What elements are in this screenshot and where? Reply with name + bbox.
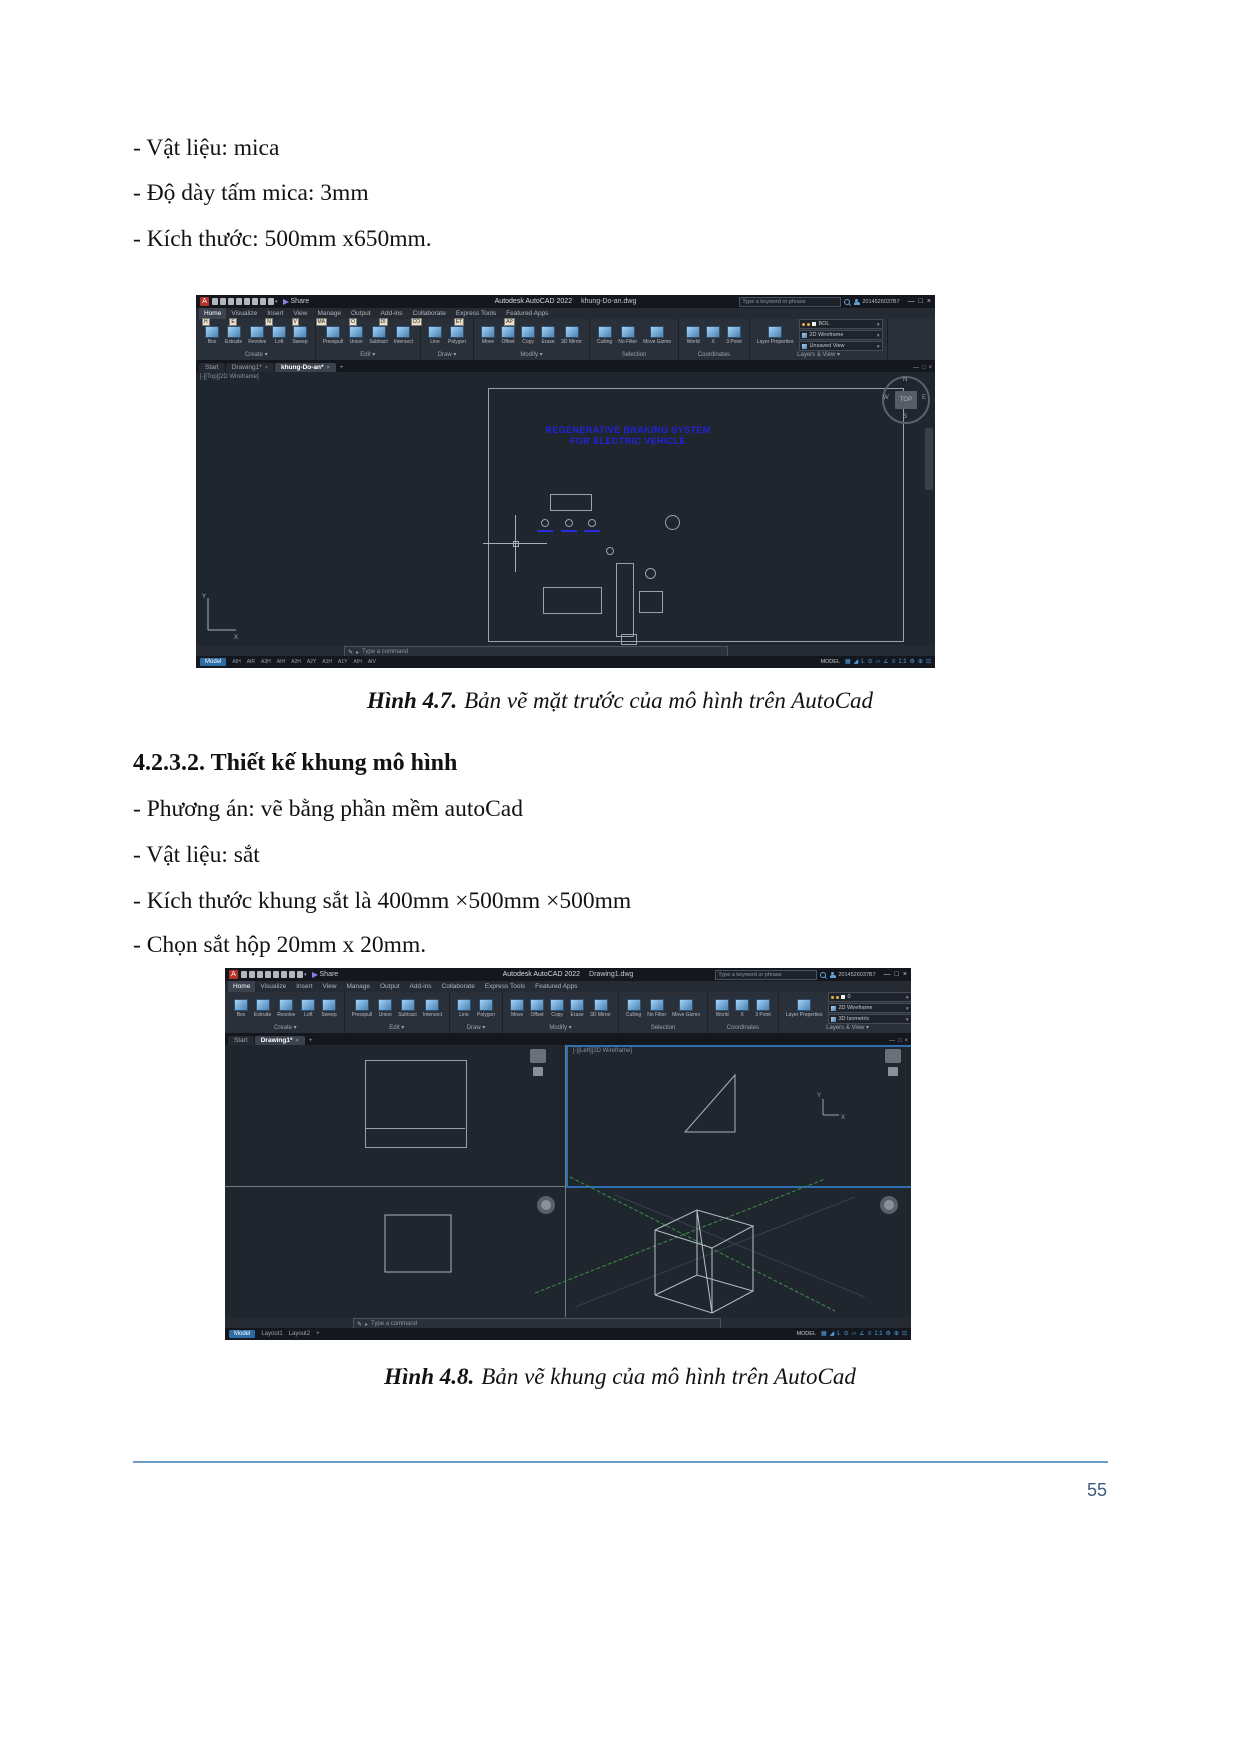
figure-caption-4-7: Hình 4.7.Bản vẽ mặt trước của mô hình tr…: [0, 688, 1240, 714]
ribbon-tab[interactable]: Express ToolsET: [451, 308, 501, 319]
tool-icon: [650, 999, 664, 1011]
panel-modify: MoveOffsetCopyErase3D Mirror Modify ▾: [474, 319, 590, 360]
ribbon-tool[interactable]: Polygon: [445, 326, 469, 345]
tool-icon: [279, 999, 293, 1011]
small-hole: [606, 547, 614, 555]
qat-icon[interactable]: [257, 971, 263, 978]
ribbon-tab[interactable]: Manage: [342, 981, 376, 992]
status-toggle-icon[interactable]: ≡: [892, 656, 896, 668]
file-name: khung-Do-an.dwg: [581, 298, 636, 305]
status-toggle-icon[interactable]: ⚙: [886, 1328, 891, 1340]
search-input[interactable]: [739, 297, 841, 307]
viewcube-north[interactable]: N: [903, 377, 907, 383]
tool-icon: [510, 999, 524, 1011]
qat-icon[interactable]: [212, 298, 218, 305]
minimize-button[interactable]: —: [908, 298, 915, 305]
ribbon-tab[interactable]: Add-insDI: [376, 308, 408, 319]
layout-tab[interactable]: AIH: [229, 659, 243, 665]
ribbon-tool[interactable]: X: [703, 326, 723, 345]
panel-draw: LinePolygon Draw ▾: [450, 992, 503, 1033]
status-toggle-icon[interactable]: ◢: [830, 1328, 835, 1340]
model-tab[interactable]: Model: [229, 1330, 255, 1338]
status-toggle-icon[interactable]: ▦: [845, 656, 851, 668]
file-tab[interactable]: Drawing1*×: [255, 1036, 305, 1045]
ribbon-tab[interactable]: InsertN: [262, 308, 288, 319]
keytip-badge: AP: [504, 318, 515, 326]
maximize-button[interactable]: □: [895, 971, 899, 978]
qat-icon[interactable]: [281, 971, 287, 978]
layer-dropdown[interactable]: 0▼: [828, 992, 911, 1002]
slot-rectangle: [616, 563, 634, 637]
status-toggle-icon[interactable]: ◢: [854, 656, 859, 668]
tool-icon: [565, 326, 579, 338]
button-hole: [588, 519, 596, 527]
panel-name[interactable]: Draw ▾: [425, 351, 469, 360]
tool-icon: [401, 999, 415, 1011]
tool-icon: [650, 326, 664, 338]
viewcube[interactable]: [880, 1196, 898, 1214]
tool-icon: [756, 999, 770, 1011]
status-toggle-icon[interactable]: ⚙: [910, 656, 915, 668]
navigation-bar[interactable]: [925, 428, 933, 490]
qat-icon[interactable]: [268, 298, 274, 305]
panel-name[interactable]: Modify ▾: [478, 351, 585, 360]
status-toggle-icon[interactable]: ▱: [876, 656, 881, 668]
tool-icon: [679, 999, 693, 1011]
pickbox: [513, 541, 519, 547]
keytip-badge: MA: [316, 318, 328, 326]
close-tab-icon[interactable]: ×: [327, 365, 330, 371]
maximize-button[interactable]: □: [919, 298, 923, 305]
tool-icon: [205, 326, 219, 338]
qat-icon[interactable]: [236, 298, 242, 305]
layout-tab[interactable]: Layout1: [258, 1331, 285, 1337]
chevron-down-icon: ▼: [876, 322, 880, 327]
panel-name[interactable]: Edit ▾: [320, 351, 416, 360]
account-icon[interactable]: [829, 972, 835, 978]
figure-label: Hình 4.7.: [367, 688, 457, 713]
ribbon-tool[interactable]: World: [712, 999, 732, 1018]
restore-drawing-icon[interactable]: □: [898, 1038, 902, 1044]
viewcube[interactable]: N S W E TOP: [882, 376, 930, 424]
figure-label: Hình 4.8.: [384, 1364, 474, 1389]
app-menu-icon[interactable]: A: [200, 297, 209, 306]
layout-tab[interactable]: AIH: [274, 659, 288, 665]
status-toggle-icon[interactable]: ≡: [868, 1328, 872, 1340]
view-icon: [802, 344, 807, 349]
ribbon-tool[interactable]: Intersect: [420, 999, 445, 1018]
qat-icon[interactable]: [228, 298, 234, 305]
ribbon-tool[interactable]: Polygon: [474, 999, 498, 1018]
close-tab-icon[interactable]: ×: [265, 365, 268, 371]
ucs-x-label: X: [234, 635, 238, 640]
ribbon-tab[interactable]: Output: [375, 981, 405, 992]
share-icon: [312, 972, 318, 978]
frame-iso-wireframe: [655, 1210, 753, 1313]
section-heading: 4.2.3.2. Thiết kế khung mô hình: [133, 750, 457, 777]
ribbon-tool[interactable]: Union: [375, 999, 395, 1018]
ribbon-tool[interactable]: Intersect: [391, 326, 416, 345]
cutout-rectangle: [543, 587, 602, 614]
ribbon-tab[interactable]: View: [318, 981, 342, 992]
qat-icon[interactable]: [241, 971, 247, 978]
panel-selection: CullingNo FilterMove Gizmo Selection: [590, 319, 679, 360]
ribbon-tool[interactable]: Copy: [518, 326, 538, 345]
search-icon[interactable]: [844, 299, 850, 305]
panel-edit: PresspullUnionSubtractIntersect Edit ▾: [345, 992, 450, 1033]
footer-divider: [133, 1461, 1108, 1463]
page-number: 55: [1087, 1480, 1107, 1501]
customize-command-icon[interactable]: ✎: [357, 1321, 362, 1328]
panel-selection: CullingNo FilterMove Gizmo Selection: [619, 992, 708, 1033]
status-toggle-icon[interactable]: L: [861, 656, 864, 668]
bullet-frame-size: - Kích thước khung sắt là 400mm ×500mm ×…: [133, 888, 631, 915]
tool-icon: [256, 999, 270, 1011]
panel-name[interactable]: Coordinates: [712, 1024, 774, 1033]
ribbon-tool[interactable]: Offset: [498, 326, 518, 345]
app-title: Autodesk AutoCAD 2022: [503, 971, 580, 978]
ribbon-tool[interactable]: 3 Point: [752, 999, 774, 1018]
gauge-hole: [665, 515, 680, 530]
panel-coordinates: WorldX3 Point Coordinates: [708, 992, 779, 1033]
layout-tab[interactable]: A1H: [319, 659, 335, 665]
search-icon[interactable]: [820, 972, 826, 978]
ribbon-tool[interactable]: 3D Mirror: [558, 326, 585, 345]
ribbon-tool[interactable]: Line: [454, 999, 474, 1018]
ribbon-tool[interactable]: Subtract: [395, 999, 420, 1018]
viewcube[interactable]: [885, 1049, 901, 1063]
ribbon-tool[interactable]: Box: [202, 326, 222, 345]
panel-edit: PresspullUnionSubtractIntersect Edit ▾: [316, 319, 421, 360]
new-layout-button[interactable]: +: [313, 1331, 323, 1337]
restore-drawing-icon[interactable]: □: [922, 365, 926, 371]
close-drawing-icon[interactable]: ×: [904, 1038, 908, 1044]
status-toggle-icon[interactable]: ⊕: [918, 656, 923, 668]
ribbon-tool[interactable]: Extrude: [222, 326, 245, 345]
status-toggle-icon[interactable]: ⊡: [902, 1328, 907, 1340]
figure-text: Bản vẽ mặt trước của mô hình trên AutoCa…: [464, 688, 873, 713]
close-tab-icon[interactable]: ×: [296, 1038, 299, 1044]
view-value: 3D Isometric: [838, 1016, 869, 1022]
command-placeholder: Type a command: [371, 1321, 417, 1327]
layout-tab[interactable]: A2H: [288, 659, 304, 665]
tool-icon: [234, 999, 248, 1011]
ribbon-tab[interactable]: ViewV: [289, 308, 313, 319]
tool-icon: [530, 999, 544, 1011]
new-drawing-tab-button[interactable]: +: [309, 1037, 313, 1045]
window-controls: —□×: [908, 298, 931, 305]
ribbon-tool[interactable]: Box: [231, 999, 251, 1018]
ribbon-tab[interactable]: HomeH: [199, 308, 226, 319]
visual-style-dropdown[interactable]: 2D Wireframe▼: [828, 1003, 911, 1013]
qat-icon[interactable]: [249, 971, 255, 978]
viewcube[interactable]: [537, 1196, 555, 1214]
app-menu-icon[interactable]: A: [229, 970, 238, 979]
visual-style-dropdown[interactable]: 2D Wireframe▼: [799, 330, 883, 340]
ribbon-tool[interactable]: Revolve: [245, 326, 269, 345]
status-toggle-icon[interactable]: 1:1: [874, 1328, 882, 1340]
ribbon-tool[interactable]: Copy: [547, 999, 567, 1018]
tool-icon: [715, 999, 729, 1011]
tool-icon: [735, 999, 749, 1011]
share-button[interactable]: Share: [291, 298, 310, 305]
panel-coordinates: WorldX3 Point Coordinates: [679, 319, 750, 360]
chevron-down-icon: ▼: [905, 1017, 909, 1022]
qat-icon[interactable]: [297, 971, 303, 978]
layout-tab[interactable]: A2Y: [304, 659, 319, 665]
layout-tab[interactable]: AIV: [365, 659, 379, 665]
button-label-text: [537, 530, 553, 532]
tool-icon: [541, 326, 555, 338]
keytip-badge: E: [229, 318, 236, 326]
minimize-drawing-icon[interactable]: —: [889, 1038, 895, 1044]
file-tab[interactable]: Drawing1*×: [226, 363, 274, 372]
ribbon-tool[interactable]: Subtract: [366, 326, 391, 345]
drawing-canvas[interactable]: [-][Top][2D Wireframe] REGENERATIVE BRAK…: [196, 372, 935, 645]
ribbon-tool[interactable]: Erase: [567, 999, 587, 1018]
model-tab[interactable]: Model: [200, 658, 226, 666]
file-tab[interactable]: khung-Do-an*×: [275, 363, 336, 372]
ribbon-tab[interactable]: VisualizeE: [226, 308, 262, 319]
ribbon-tool[interactable]: 3 Point: [723, 326, 745, 345]
ribbon-tool-layer-properties[interactable]: Layer Properties: [783, 999, 826, 1018]
status-toggle-icon[interactable]: ▱: [852, 1328, 857, 1340]
drawing-title-line2: FOR ELECTRIC VEHICLE: [570, 436, 686, 446]
document-page: - Vật liệu: mica - Độ dày tấm mica: 3mm …: [0, 0, 1240, 1754]
ribbon-tool[interactable]: Extrude: [251, 999, 274, 1018]
ribbon-tool[interactable]: 3D Mirror: [587, 999, 614, 1018]
tool-icon: [301, 999, 315, 1011]
window-title: Autodesk AutoCAD 2022Drawing1.dwg: [503, 971, 634, 978]
search-input[interactable]: [715, 970, 817, 980]
bullet-thickness: - Độ dày tấm mica: 3mm: [133, 180, 369, 207]
tool-icon: [293, 326, 307, 338]
titlebar: A ▾ Share Autodesk AutoCAD 2022khung-Do-…: [196, 295, 935, 308]
button-label-text: [584, 530, 600, 532]
tool-icon: [621, 326, 635, 338]
viewcube-home-icon[interactable]: [888, 1067, 898, 1076]
qat-icon[interactable]: [220, 298, 226, 305]
panel-name[interactable]: Create ▾: [231, 1024, 340, 1033]
ribbon-tab[interactable]: Featured Apps: [530, 981, 582, 992]
ribbon-tool[interactable]: Union: [346, 326, 366, 345]
ribbon-tab[interactable]: Collaborate: [437, 981, 480, 992]
layout-tab[interactable]: A1Y: [335, 659, 350, 665]
panel-name[interactable]: Edit ▾: [349, 1024, 445, 1033]
view-dropdown[interactable]: Unsaved View▼: [799, 341, 883, 351]
visual-style-value: 2D Wireframe: [838, 1005, 872, 1011]
viewport-label[interactable]: [-][Top][2D Wireframe]: [200, 374, 259, 380]
ribbon-tool-layer-properties[interactable]: Layer Properties: [754, 326, 797, 345]
view-dropdown[interactable]: 3D Isometric▼: [828, 1014, 911, 1024]
keytip-badge: O: [349, 318, 357, 326]
keytip-badge: H: [202, 318, 210, 326]
ribbon-tab[interactable]: Home: [228, 981, 255, 992]
close-button[interactable]: ×: [927, 298, 931, 305]
qat-icon[interactable]: [244, 298, 250, 305]
ribbon-tool[interactable]: Sweep: [289, 326, 310, 345]
qat-dropdown-icon[interactable]: ▾: [275, 299, 278, 305]
visual-style-icon: [831, 1006, 836, 1011]
display-cutout: [550, 494, 592, 511]
tool-icon: [594, 999, 608, 1011]
tool-icon: [598, 326, 612, 338]
layer-freeze-icon: [807, 323, 810, 326]
status-toggle-icon[interactable]: ▦: [821, 1328, 827, 1340]
account-id[interactable]: 2014526037B7: [838, 972, 875, 978]
qat-icon[interactable]: [265, 971, 271, 978]
ribbon-tab[interactable]: Express Tools: [480, 981, 530, 992]
tool-icon: [550, 999, 564, 1011]
ribbon-tool[interactable]: Move: [478, 326, 498, 345]
layout-tab[interactable]: A3H: [258, 659, 274, 665]
ribbon-tool[interactable]: Loft: [269, 326, 289, 345]
view-value: Unsaved View: [809, 343, 844, 349]
qat-icon[interactable]: [289, 971, 295, 978]
ribbon-tab[interactable]: OutputO: [346, 308, 376, 319]
ribbon-tool[interactable]: Presspull: [349, 999, 376, 1018]
ribbon-tool[interactable]: World: [683, 326, 703, 345]
status-toggle-icon[interactable]: ⊙: [844, 1328, 849, 1340]
model-space-label[interactable]: MODEL: [796, 1331, 816, 1337]
ribbon-tab[interactable]: ManageMA: [313, 308, 347, 319]
chevron-down-icon: ▼: [905, 995, 909, 1000]
ribbon-tool[interactable]: X: [732, 999, 752, 1018]
layout-tab[interactable]: Layout2: [286, 1331, 313, 1337]
model-space-label[interactable]: MODEL: [820, 659, 840, 665]
keytip-badge: DI: [379, 318, 388, 326]
ribbon-tool[interactable]: No Filter: [644, 999, 669, 1018]
ribbon-tool[interactable]: Offset: [527, 999, 547, 1018]
command-prompt-icon: ▸: [365, 1321, 368, 1328]
ribbon-tab[interactable]: Visualize: [255, 981, 291, 992]
file-tab-bar: Start×Drawing1*× + —□×: [225, 1033, 911, 1045]
tool-icon: [425, 999, 439, 1011]
panel-layers-view: Layer Properties 0▼ 2D Wireframe▼ 3D Iso…: [779, 992, 911, 1033]
file-name: Drawing1.dwg: [589, 971, 633, 978]
ucs-x-label: X: [841, 1115, 845, 1121]
ribbon-tool[interactable]: Move Gizmo: [669, 999, 703, 1018]
autocad-screenshot-2: A ▾ Share Autodesk AutoCAD 2022Drawing1.…: [225, 968, 911, 1340]
account-icon[interactable]: [853, 299, 859, 305]
panel-modify: MoveOffsetCopyErase3D Mirror Modify ▾: [503, 992, 619, 1033]
layer-color-swatch: [841, 995, 845, 999]
new-drawing-tab-button[interactable]: +: [340, 364, 344, 372]
ucs-icon: Y X: [200, 590, 240, 640]
tool-icon: [326, 326, 340, 338]
tool-icon: [372, 326, 386, 338]
chevron-down-icon: ▼: [876, 333, 880, 338]
panel-name[interactable]: Selection: [623, 1024, 703, 1033]
chevron-down-icon: ▼: [905, 1006, 909, 1011]
qat-icon[interactable]: [260, 298, 266, 305]
panel-name[interactable]: Layers & View ▾: [754, 351, 884, 360]
ribbon-tool[interactable]: Sweep: [318, 999, 339, 1018]
ribbon-tool[interactable]: Loft: [298, 999, 318, 1018]
status-toggle-icon[interactable]: ⊙: [868, 656, 873, 668]
panel-name[interactable]: Create ▾: [202, 351, 311, 360]
viewcube-south[interactable]: S: [903, 414, 907, 420]
command-placeholder: Type a command: [362, 649, 408, 655]
status-toggle-icon[interactable]: ∠: [859, 1328, 864, 1340]
layer-value: BOL: [818, 321, 829, 327]
tool-icon: [322, 999, 336, 1011]
viewcube-top-face[interactable]: TOP: [895, 391, 917, 409]
ribbon-tool[interactable]: Culling: [623, 999, 644, 1018]
bullet-method: - Phương án: vẽ bằng phần mềm autoCad: [133, 796, 523, 823]
ribbon-panels: BoxExtrudeRevolveLoftSweep Create ▾ Pres…: [225, 992, 911, 1033]
ribbon-tool[interactable]: Erase: [538, 326, 558, 345]
layout-tab[interactable]: AIH: [350, 659, 364, 665]
file-tab[interactable]: Start×: [228, 1036, 254, 1045]
layer-color-swatch: [812, 322, 816, 326]
share-button[interactable]: Share: [320, 971, 339, 978]
ribbon-tool[interactable]: Revolve: [274, 999, 298, 1018]
keytip-badge: N: [265, 318, 273, 326]
minimize-drawing-icon[interactable]: —: [913, 365, 919, 371]
qat-dropdown-icon[interactable]: ▾: [304, 972, 307, 978]
ribbon-tab[interactable]: Featured AppsAP: [501, 308, 553, 319]
viewcube-east[interactable]: E: [922, 395, 926, 401]
layer-properties-icon: [768, 326, 782, 338]
ribbon-tool[interactable]: Move Gizmo: [640, 326, 674, 345]
panel-name[interactable]: Modify ▾: [507, 1024, 614, 1033]
minimize-button[interactable]: —: [884, 971, 891, 978]
ribbon-tool[interactable]: Presspull: [320, 326, 347, 345]
panel-create: BoxExtrudeRevolveLoftSweep Create ▾: [227, 992, 345, 1033]
tool-icon: [457, 999, 471, 1011]
status-toggle-icon[interactable]: L: [837, 1328, 840, 1340]
button-hole: [541, 519, 549, 527]
status-toggle-icon[interactable]: 1:1: [898, 656, 906, 668]
drawing-title-line1: REGENERATIVE BRAKING SYSTEM: [545, 425, 710, 435]
layer-dropdown[interactable]: BOL▼: [799, 319, 883, 329]
ribbon-tab[interactable]: Add-ins: [405, 981, 437, 992]
ribbon-tab-bar: HomeHVisualizeEInsertNViewVManageMAOutpu…: [196, 308, 935, 319]
visual-style-icon: [802, 333, 807, 338]
window-title: Autodesk AutoCAD 2022khung-Do-an.dwg: [495, 298, 637, 305]
status-toggle-icon[interactable]: ⊕: [894, 1328, 899, 1340]
status-toggle-icon[interactable]: ⊡: [926, 656, 931, 668]
viewcube-west[interactable]: W: [883, 395, 889, 401]
panel-name[interactable]: Layers & View ▾: [783, 1024, 911, 1033]
ribbon-tab[interactable]: CollaborateCO: [408, 308, 451, 319]
panel-name[interactable]: Selection: [594, 351, 674, 360]
panel-name[interactable]: Coordinates: [683, 351, 745, 360]
bullet-material-steel: - Vật liệu: sắt: [133, 842, 260, 869]
account-id[interactable]: 2014526037B7: [862, 299, 899, 305]
layout-tab[interactable]: AIR: [244, 659, 258, 665]
customize-command-icon[interactable]: ✎: [348, 649, 353, 656]
ribbon-tool[interactable]: No Filter: [615, 326, 640, 345]
ribbon-tool[interactable]: Culling: [594, 326, 615, 345]
ribbon-tool[interactable]: Line: [425, 326, 445, 345]
qat-icon[interactable]: [252, 298, 258, 305]
close-drawing-icon[interactable]: ×: [928, 365, 932, 371]
panel-name[interactable]: Draw ▾: [454, 1024, 498, 1033]
ribbon-tab[interactable]: Insert: [291, 981, 317, 992]
layer-on-icon: [802, 323, 805, 326]
close-button[interactable]: ×: [903, 971, 907, 978]
ucs-y-label: Y: [817, 1093, 821, 1099]
ribbon-tool[interactable]: Move: [507, 999, 527, 1018]
layer-value: 0: [847, 994, 850, 1000]
file-tab[interactable]: Start×: [199, 363, 225, 372]
status-toggle-icon[interactable]: ∠: [883, 656, 888, 668]
app-title: Autodesk AutoCAD 2022: [495, 298, 572, 305]
qat-icon[interactable]: [273, 971, 279, 978]
drawing-canvas[interactable]: [-][Left][2D Wireframe] Y X: [225, 1045, 911, 1317]
